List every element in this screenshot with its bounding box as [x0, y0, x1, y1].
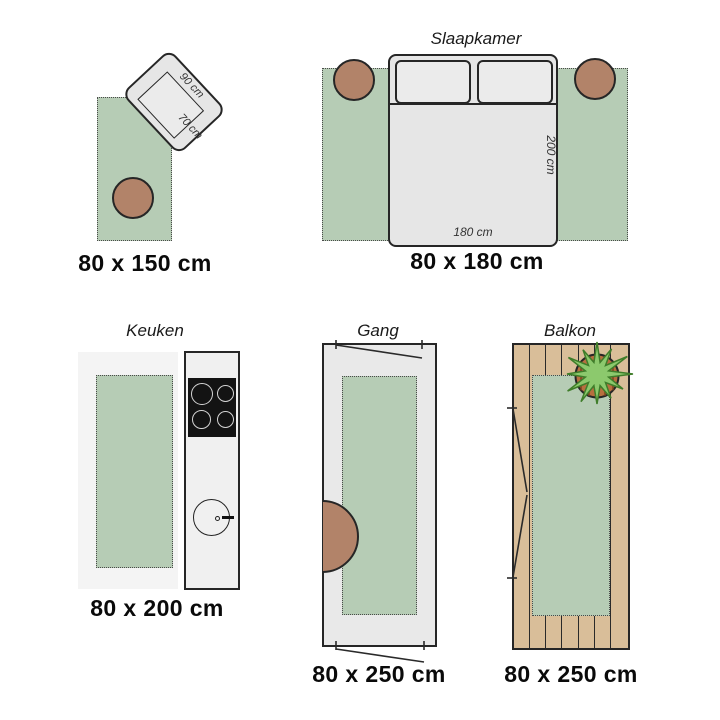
- potted-plant: [558, 336, 638, 412]
- panel-balkon: Balkon 80 x 250 cm: [0, 0, 720, 720]
- size-caption-250-balkon: 80 x 250 cm: [461, 661, 681, 688]
- deck-plank-line: [529, 345, 530, 648]
- rug-size-infographic: 90 cm 70 cm 80 x 150 cm Slaapkamer 180 c…: [0, 0, 720, 720]
